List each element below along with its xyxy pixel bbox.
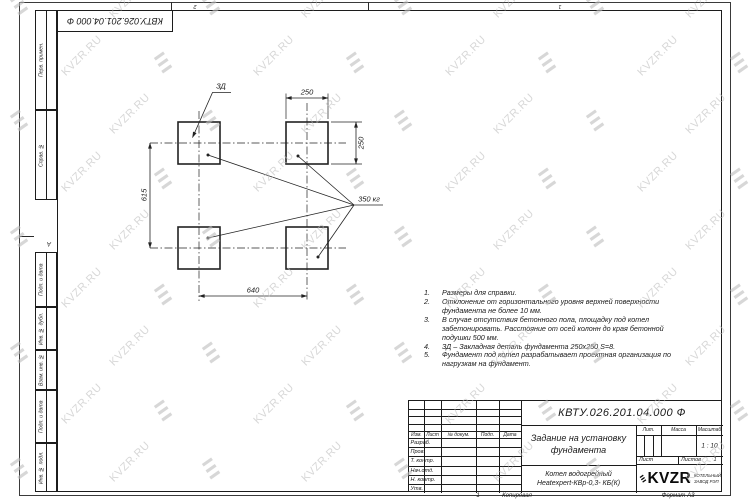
zone-number: 1 [558, 3, 561, 9]
dim-250-top: 250 [301, 88, 314, 97]
grid-line [409, 475, 521, 476]
logo-subtext: КОТЕЛЬНЫЙ ЗАВОД РЭП [694, 473, 721, 485]
col-izm: Изм. [411, 432, 422, 438]
row-prov: Пров. [411, 449, 426, 455]
grid-line [678, 456, 679, 464]
rotated-doc-number: КВТУ.026.201.04.000 Ф [67, 16, 163, 26]
sheets-label: Листов [681, 457, 701, 463]
grid-line [644, 435, 645, 456]
zone-number: 2 [193, 3, 196, 9]
drawing-title: Задание на установку фундамента [521, 425, 636, 465]
company-logo: KVZR КОТЕЛЬНЫЙ ЗАВОД РЭП [639, 465, 721, 492]
zone-tick [19, 236, 34, 237]
grid-line [409, 484, 521, 485]
stamp-perv-primen: Перв. примен. [35, 10, 58, 110]
stamp-inv-podl: Инв. № подл. [35, 443, 58, 492]
title-block: Изм. Лист № докум. Подп. Дата Разраб. Пр… [408, 400, 722, 492]
stamp-label: Перв. примен. [36, 11, 47, 109]
grid-line [696, 425, 697, 456]
col-data: Дата [503, 432, 516, 438]
stamp-sprav-no: Справ. № [35, 110, 58, 200]
zone-letter: А [47, 240, 51, 246]
row-nkontr: Н. контр. [411, 477, 436, 483]
grid-line [409, 416, 521, 417]
grid-line [409, 456, 521, 457]
col-docum: № докум. [447, 432, 469, 438]
grid-line [409, 447, 521, 448]
stamp-label: Взам. инв. № [36, 351, 47, 389]
scale-label: Масштаб [698, 427, 721, 433]
stamp-podp-data-1: Подп. и дата [35, 252, 58, 307]
grid-line [409, 409, 521, 410]
zone-tick [171, 2, 172, 10]
footer-page-number: 1 [476, 493, 479, 499]
stamp-vzam-inv: Взам. инв. № [35, 350, 58, 390]
stamp-label: Инв. № подл. [36, 444, 47, 491]
kvzr-mark-icon [639, 471, 648, 486]
doc-number: КВТУ.026.201.04.000 Ф [521, 401, 723, 425]
mass-label: Масса [671, 427, 686, 433]
stamp-inv-dubl: Инв. № дубл. [35, 307, 58, 350]
note-item: 2.Отклонение от горизонтального уровня в… [424, 298, 724, 316]
grid-line [653, 435, 654, 456]
grid-line [636, 435, 723, 436]
row-razrab: Разраб. [411, 440, 431, 446]
dim-250-right: 250 [357, 137, 366, 150]
footer-copied-by: Копировал [502, 493, 532, 499]
stamp-label: Инв. № дубл. [36, 308, 47, 349]
detail-label: ЗД [216, 82, 226, 91]
row-nachotd: Нач.отд. [411, 468, 434, 474]
scale-value: 1 : 10 [701, 442, 717, 449]
stamp-label: Справ. № [36, 111, 47, 199]
sheet-label: Лист [639, 457, 653, 463]
note-item: 5.Фундамент под котел разрабатывает прое… [424, 351, 724, 369]
grid-line [409, 424, 521, 425]
lit-label: Лит. [643, 427, 655, 433]
grid-line [661, 425, 662, 456]
notes-list: 1.Размеры для справки. 2.Отклонение от г… [424, 289, 724, 369]
grid-line [409, 466, 521, 467]
drawing-sheet: 2 1 А КВТУ.026.201.04.000 Ф Перв. примен… [0, 0, 750, 500]
row-tkontr: Т. контр. [411, 458, 435, 464]
logo-text: KVZR [648, 470, 691, 488]
footer-format: Формат А3 [662, 493, 695, 499]
stamp-label: Подп. и дата [36, 253, 47, 306]
stamp-label: Подп. и дата [36, 391, 47, 442]
stamp-podp-data-2: Подп. и дата [35, 390, 58, 443]
note-item: 3.В случае отсутствия бетонного пола, пл… [424, 316, 724, 343]
dim-615-left: 615 [140, 189, 149, 202]
sheets-value: 1 [713, 457, 716, 463]
row-utv: Утв. [411, 486, 424, 492]
load-label: 350 кг [358, 195, 380, 204]
col-list: Лист [426, 432, 439, 438]
rotated-doc-number-box: КВТУ.026.201.04.000 Ф [57, 10, 173, 32]
product-name: Котел водогрейный Heatexpert-КВр-0,3- КБ… [521, 465, 636, 493]
dim-640-bottom: 640 [247, 286, 260, 295]
zone-tick [368, 2, 369, 10]
col-podp: Подп. [481, 432, 494, 438]
grid-line [409, 438, 521, 439]
